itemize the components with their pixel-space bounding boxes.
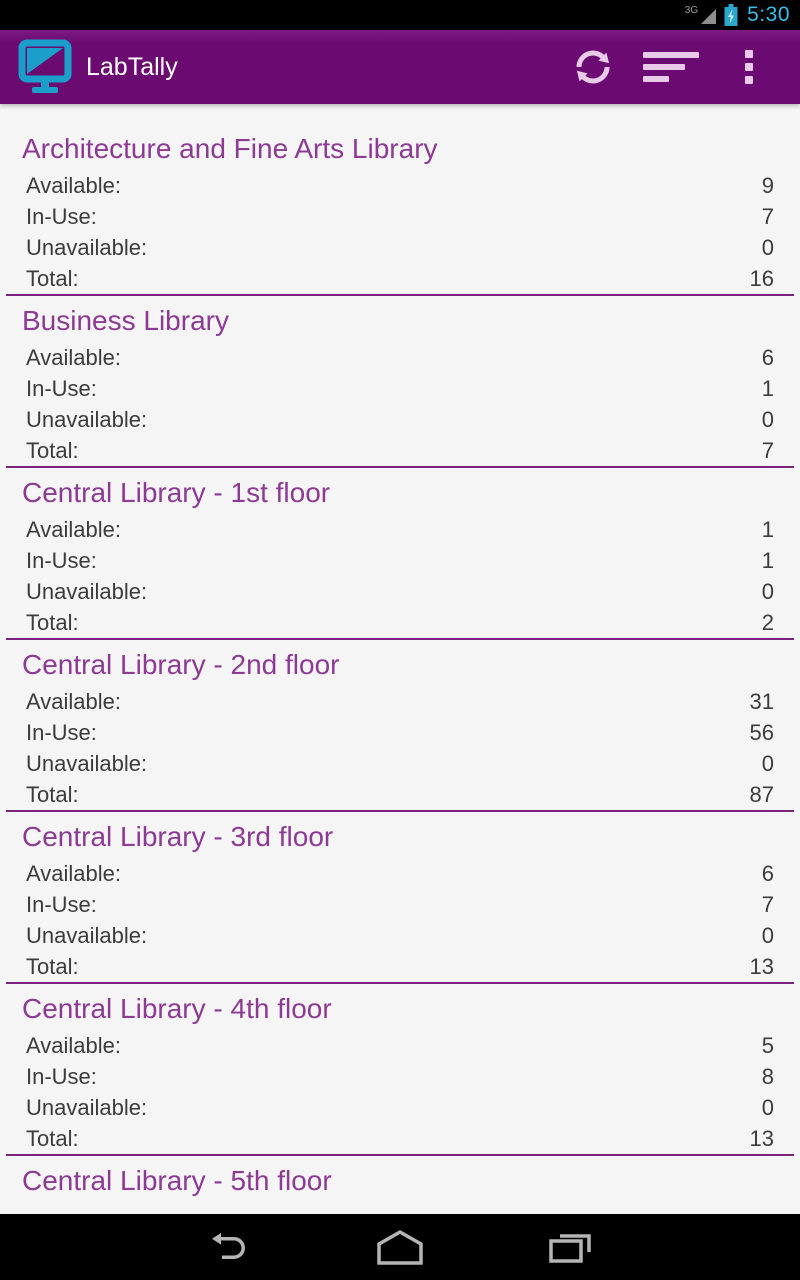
stat-label: Unavailable: [26,579,147,605]
library-name: Central Library - 3rd floor [6,814,794,858]
library-name: Central Library - 1st floor [6,470,794,514]
stat-value: 0 [762,923,774,949]
stat-label: In-Use: [26,1064,97,1090]
stat-row: In-Use:7 [6,201,794,232]
library-section[interactable]: Central Library - 5th floor [6,1156,794,1202]
stat-row: In-Use:8 [6,1061,794,1092]
stat-value: 1 [762,548,774,574]
back-icon [206,1223,254,1271]
stat-row: Unavailable:0 [6,232,794,263]
stat-value: 13 [750,954,774,980]
stat-label: Unavailable: [26,235,147,261]
stat-label: In-Use: [26,720,97,746]
stat-row: Available:1 [6,514,794,545]
stat-label: Unavailable: [26,923,147,949]
sort-button[interactable] [632,30,710,104]
network-type-label: 3G [685,6,698,25]
stat-row: Total:2 [6,607,794,638]
stat-row: Total:87 [6,779,794,810]
stat-label: Total: [26,954,79,980]
stat-row: Total:7 [6,435,794,466]
stat-label: Total: [26,610,79,636]
stat-label: Unavailable: [26,1095,147,1121]
stat-value: 16 [750,266,774,292]
library-name: Architecture and Fine Arts Library [6,126,794,170]
signal-strength-icon [700,8,717,25]
app-title: LabTally [86,53,178,82]
stat-value: 13 [750,1126,774,1152]
stat-value: 87 [750,782,774,808]
library-section[interactable]: Central Library - 2nd floor Available:31… [6,640,794,812]
stat-value: 9 [762,173,774,199]
stat-value: 0 [762,579,774,605]
stat-row: In-Use:1 [6,373,794,404]
stat-label: Available: [26,173,121,199]
stat-label: Available: [26,689,121,715]
stat-rows: Available:9In-Use:7Unavailable:0Total:16 [6,170,794,294]
stat-value: 6 [762,345,774,371]
system-nav-bar [0,1214,800,1280]
stat-label: Total: [26,782,79,808]
stat-value: 7 [762,438,774,464]
stat-rows: Available:31In-Use:56Unavailable:0Total:… [6,686,794,810]
home-icon [375,1227,425,1267]
stat-label: In-Use: [26,548,97,574]
library-section[interactable]: Central Library - 4th floor Available:5I… [6,984,794,1156]
library-name: Central Library - 5th floor [6,1158,794,1202]
stat-value: 0 [762,751,774,777]
refresh-icon [569,43,617,91]
recents-icon [547,1228,593,1266]
stat-label: Available: [26,861,121,887]
library-name: Business Library [6,298,794,342]
stat-row: Unavailable:0 [6,404,794,435]
library-name: Central Library - 2nd floor [6,642,794,686]
stat-label: Total: [26,266,79,292]
stat-label: Unavailable: [26,751,147,777]
stat-row: In-Use:56 [6,717,794,748]
back-button[interactable] [206,1223,254,1271]
stat-label: Available: [26,1033,121,1059]
stat-row: Available:9 [6,170,794,201]
stat-label: Available: [26,345,121,371]
stat-row: Available:6 [6,858,794,889]
stat-value: 0 [762,235,774,261]
stat-rows: Available:5In-Use:8Unavailable:0Total:13 [6,1030,794,1154]
clock: 5:30 [745,3,790,27]
stat-row: Unavailable:0 [6,748,794,779]
stat-row: Available:5 [6,1030,794,1061]
stat-label: In-Use: [26,376,97,402]
stat-label: Total: [26,1126,79,1152]
action-bar: LabTally [0,30,800,104]
battery-charging-icon [724,4,738,26]
stat-row: In-Use:1 [6,545,794,576]
stat-value: 2 [762,610,774,636]
stat-row: Available:31 [6,686,794,717]
stat-label: Total: [26,438,79,464]
stat-row: In-Use:7 [6,889,794,920]
status-bar: 3G 5:30 [0,0,800,30]
library-list: Architecture and Fine Arts Library Avail… [0,104,800,1202]
stat-label: In-Use: [26,204,97,230]
refresh-button[interactable] [554,30,632,104]
stat-value: 7 [762,892,774,918]
stat-value: 0 [762,1095,774,1121]
library-section[interactable]: Central Library - 3rd floor Available:6I… [6,812,794,984]
stat-value: 6 [762,861,774,887]
stat-row: Unavailable:0 [6,1092,794,1123]
stat-value: 1 [762,517,774,543]
library-section[interactable]: Architecture and Fine Arts Library Avail… [6,124,794,296]
stat-label: In-Use: [26,892,97,918]
library-section[interactable]: Central Library - 1st floor Available:1I… [6,468,794,640]
stat-value: 31 [750,689,774,715]
stat-row: Unavailable:0 [6,920,794,951]
stat-label: Unavailable: [26,407,147,433]
app-logo-monitor-icon [18,39,72,95]
stat-row: Total:13 [6,1123,794,1154]
recents-button[interactable] [546,1223,594,1271]
stat-value: 1 [762,376,774,402]
stat-rows: Available:6In-Use:7Unavailable:0Total:13 [6,858,794,982]
stat-row: Total:16 [6,263,794,294]
stat-value: 56 [750,720,774,746]
stat-value: 5 [762,1033,774,1059]
sort-icon [643,52,699,82]
stat-rows: Available:1In-Use:1Unavailable:0Total:2 [6,514,794,638]
stat-row: Total:13 [6,951,794,982]
stat-value: 8 [762,1064,774,1090]
stat-row: Unavailable:0 [6,576,794,607]
stat-row: Available:6 [6,342,794,373]
library-section[interactable]: Business Library Available:6In-Use:1Unav… [6,296,794,468]
home-button[interactable] [376,1223,424,1271]
library-name: Central Library - 4th floor [6,986,794,1030]
stat-label: Available: [26,517,121,543]
app-screen: 3G 5:30 LabTally [0,0,800,1280]
overflow-menu-icon [745,50,753,84]
overflow-menu-button[interactable] [710,30,788,104]
stat-value: 0 [762,407,774,433]
stat-rows: Available:6In-Use:1Unavailable:0Total:7 [6,342,794,466]
network-indicator: 3G [685,6,717,25]
stat-value: 7 [762,204,774,230]
